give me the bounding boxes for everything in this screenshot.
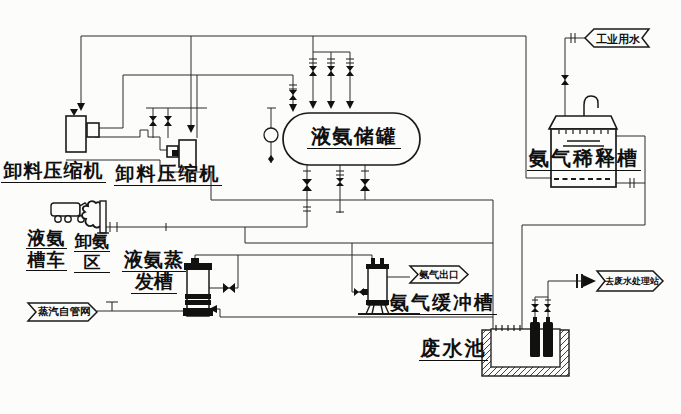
evaporator-vessel bbox=[183, 258, 213, 316]
process-pipes bbox=[66, 36, 645, 358]
unloading-compressor-left bbox=[66, 116, 99, 152]
label-waste-pool: 废水池 bbox=[419, 338, 488, 361]
label-storage-tank: 液氨储罐 bbox=[307, 126, 401, 149]
label-buffer-tank: 氨气缓冲槽 bbox=[388, 293, 497, 315]
tag-ammonia-outlet: 氨气出口 bbox=[419, 268, 459, 282]
tag-to-wastewater: 去废水处理站 bbox=[605, 275, 653, 288]
pid-diagram: 卸料压缩机 卸料压缩机 液氨 槽车 卸氨 区 液氨蒸 发槽 液氨储罐 氨气稀释槽… bbox=[0, 0, 681, 414]
tag-industrial-water: 工业用水 bbox=[594, 32, 642, 47]
label-unloading-area-1: 卸氨 bbox=[74, 233, 110, 252]
waste-water-pool bbox=[482, 317, 569, 376]
label-compressor-right: 卸料压缩机 bbox=[114, 164, 222, 186]
label-tank-truck-2: 槽车 bbox=[26, 251, 67, 271]
dilution-tank-vessel bbox=[549, 96, 617, 187]
label-tank-truck-1: 液氨 bbox=[26, 229, 67, 249]
label-evaporator-1: 液氨蒸 bbox=[122, 250, 186, 272]
tag-steam-supply: 蒸汽自管网 bbox=[38, 305, 89, 319]
unloading-hose bbox=[82, 201, 109, 233]
vent-pipe-icon bbox=[584, 96, 598, 116]
label-unloading-area-2: 区 bbox=[74, 254, 110, 273]
diagram-canvas bbox=[0, 0, 681, 414]
level-gauge-icon bbox=[264, 128, 278, 142]
label-evaporator-2: 发槽 bbox=[131, 272, 177, 294]
label-dilution-tank: 氨气稀释槽 bbox=[527, 148, 641, 171]
valves bbox=[149, 66, 569, 312]
label-compressor-left: 卸料压缩机 bbox=[1, 161, 106, 183]
